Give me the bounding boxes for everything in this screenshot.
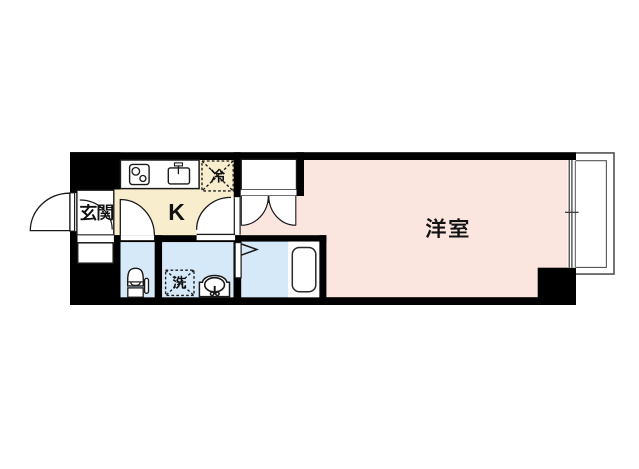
svg-text:K: K — [168, 199, 185, 225]
